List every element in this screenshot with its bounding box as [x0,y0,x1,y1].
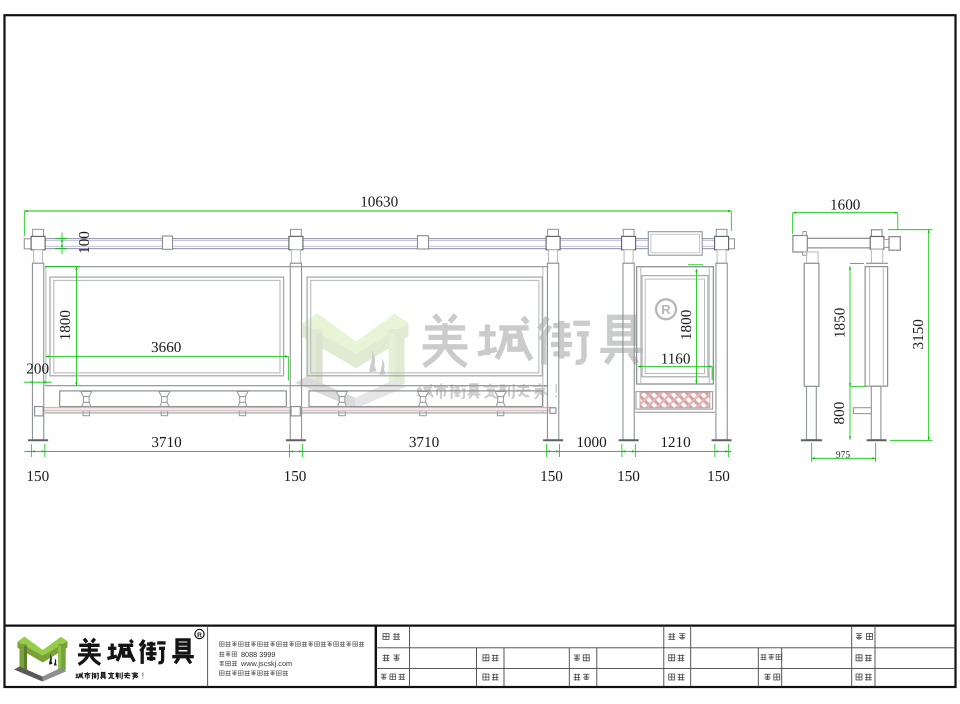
svg-text:www.jscskj.com: www.jscskj.com [240,659,292,668]
svg-text:10630: 10630 [360,194,398,211]
svg-text:150: 150 [284,468,307,485]
svg-text:1800: 1800 [678,309,695,340]
svg-text:R: R [197,632,202,639]
svg-text:1850: 1850 [832,307,849,338]
svg-text:100: 100 [76,231,93,254]
svg-text:8088 3999: 8088 3999 [241,650,276,659]
svg-text:1160: 1160 [661,351,691,368]
svg-text:1600: 1600 [830,197,861,214]
svg-text:150: 150 [707,468,730,485]
svg-text:150: 150 [540,468,563,485]
svg-text:1000: 1000 [576,434,607,451]
svg-text:3710: 3710 [409,434,440,451]
svg-text:975: 975 [836,451,851,461]
svg-text:200: 200 [26,361,49,378]
svg-text:3660: 3660 [151,339,182,356]
svg-text:3710: 3710 [151,434,182,451]
svg-text:800: 800 [831,401,848,424]
svg-text:1210: 1210 [660,434,691,451]
svg-text:1800: 1800 [57,310,74,341]
svg-text:R: R [661,302,671,317]
svg-text:150: 150 [617,468,640,485]
svg-text:150: 150 [26,468,49,485]
svg-text:3150: 3150 [910,319,927,350]
